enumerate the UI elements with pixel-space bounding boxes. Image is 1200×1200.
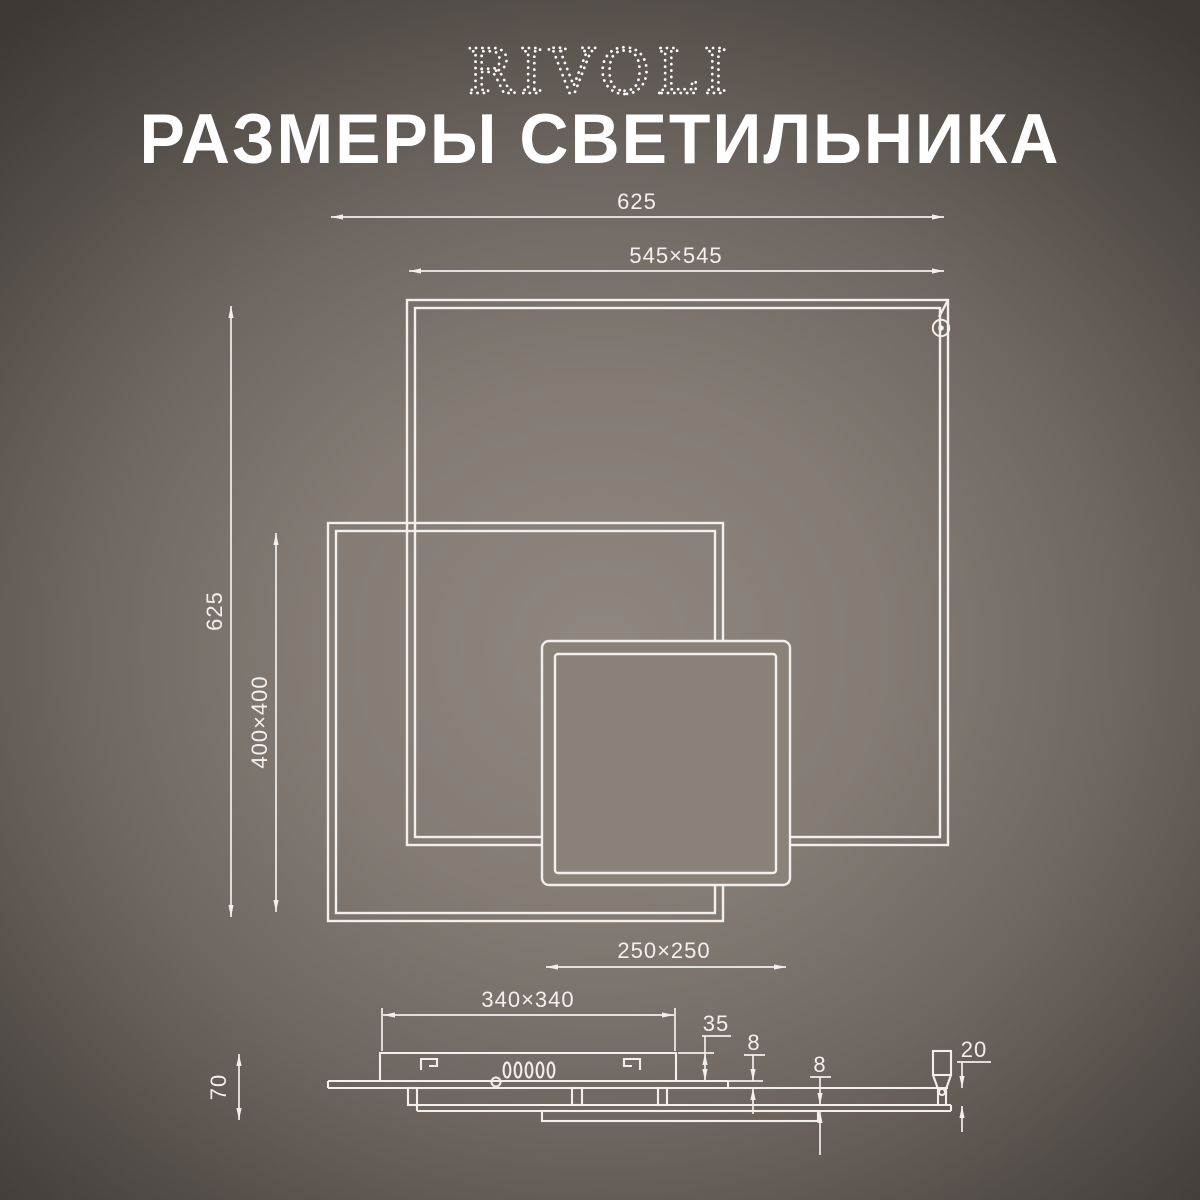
dim-canopy-height: 35 bbox=[678, 1011, 731, 1081]
terminal-block bbox=[492, 1062, 555, 1086]
dim-label-total-height-side: 70 bbox=[206, 1074, 231, 1100]
page-title: РАЗМЕРЫ СВЕТИЛЬНИКА bbox=[0, 103, 1200, 177]
wire-connector bbox=[933, 1051, 951, 1105]
dim-inner-frame: 250×250 bbox=[546, 938, 786, 967]
plan-small-square bbox=[542, 641, 790, 885]
dim-total-height: 625 bbox=[202, 306, 231, 917]
dim-total-height-side: 70 bbox=[206, 1054, 239, 1120]
side-view: 340×340 35 8 bbox=[206, 987, 991, 1155]
dim-label-bottom-gap: 20 bbox=[961, 1037, 987, 1062]
dim-label-canopy-height: 35 bbox=[703, 1011, 729, 1036]
dim-label-outer-frame: 545×545 bbox=[629, 243, 722, 268]
dim-frame-thickness-mid: 8 bbox=[810, 1052, 831, 1155]
dim-outer-frame: 545×545 bbox=[409, 243, 944, 271]
dim-label-frame-thickness-top: 8 bbox=[747, 1030, 760, 1055]
dim-label-middle-frame: 400×400 bbox=[247, 675, 272, 768]
dim-label-total-height: 625 bbox=[202, 591, 227, 631]
dim-frame-thickness-top: 8 bbox=[728, 1030, 765, 1114]
dim-label-total-width: 625 bbox=[617, 189, 657, 214]
brand-logo: RIVOLI bbox=[466, 35, 733, 108]
dim-middle-frame: 400×400 bbox=[247, 533, 276, 912]
dim-canopy-width: 340×340 bbox=[382, 987, 675, 1051]
dim-label-frame-thickness-mid: 8 bbox=[813, 1052, 826, 1077]
technical-drawing: RIVOLI bbox=[0, 0, 1200, 1200]
plan-view: 625 545×545 625 400×400 250×250 bbox=[202, 189, 949, 967]
frame-profiles bbox=[328, 1081, 951, 1121]
dim-label-canopy-width: 340×340 bbox=[481, 987, 574, 1012]
dim-label-inner-frame: 250×250 bbox=[617, 938, 710, 963]
dim-total-width: 625 bbox=[331, 189, 944, 217]
dim-bottom-gap: 20 bbox=[957, 1037, 991, 1132]
lamp-dimensions-diagram: RIVOLI bbox=[0, 0, 1200, 1200]
